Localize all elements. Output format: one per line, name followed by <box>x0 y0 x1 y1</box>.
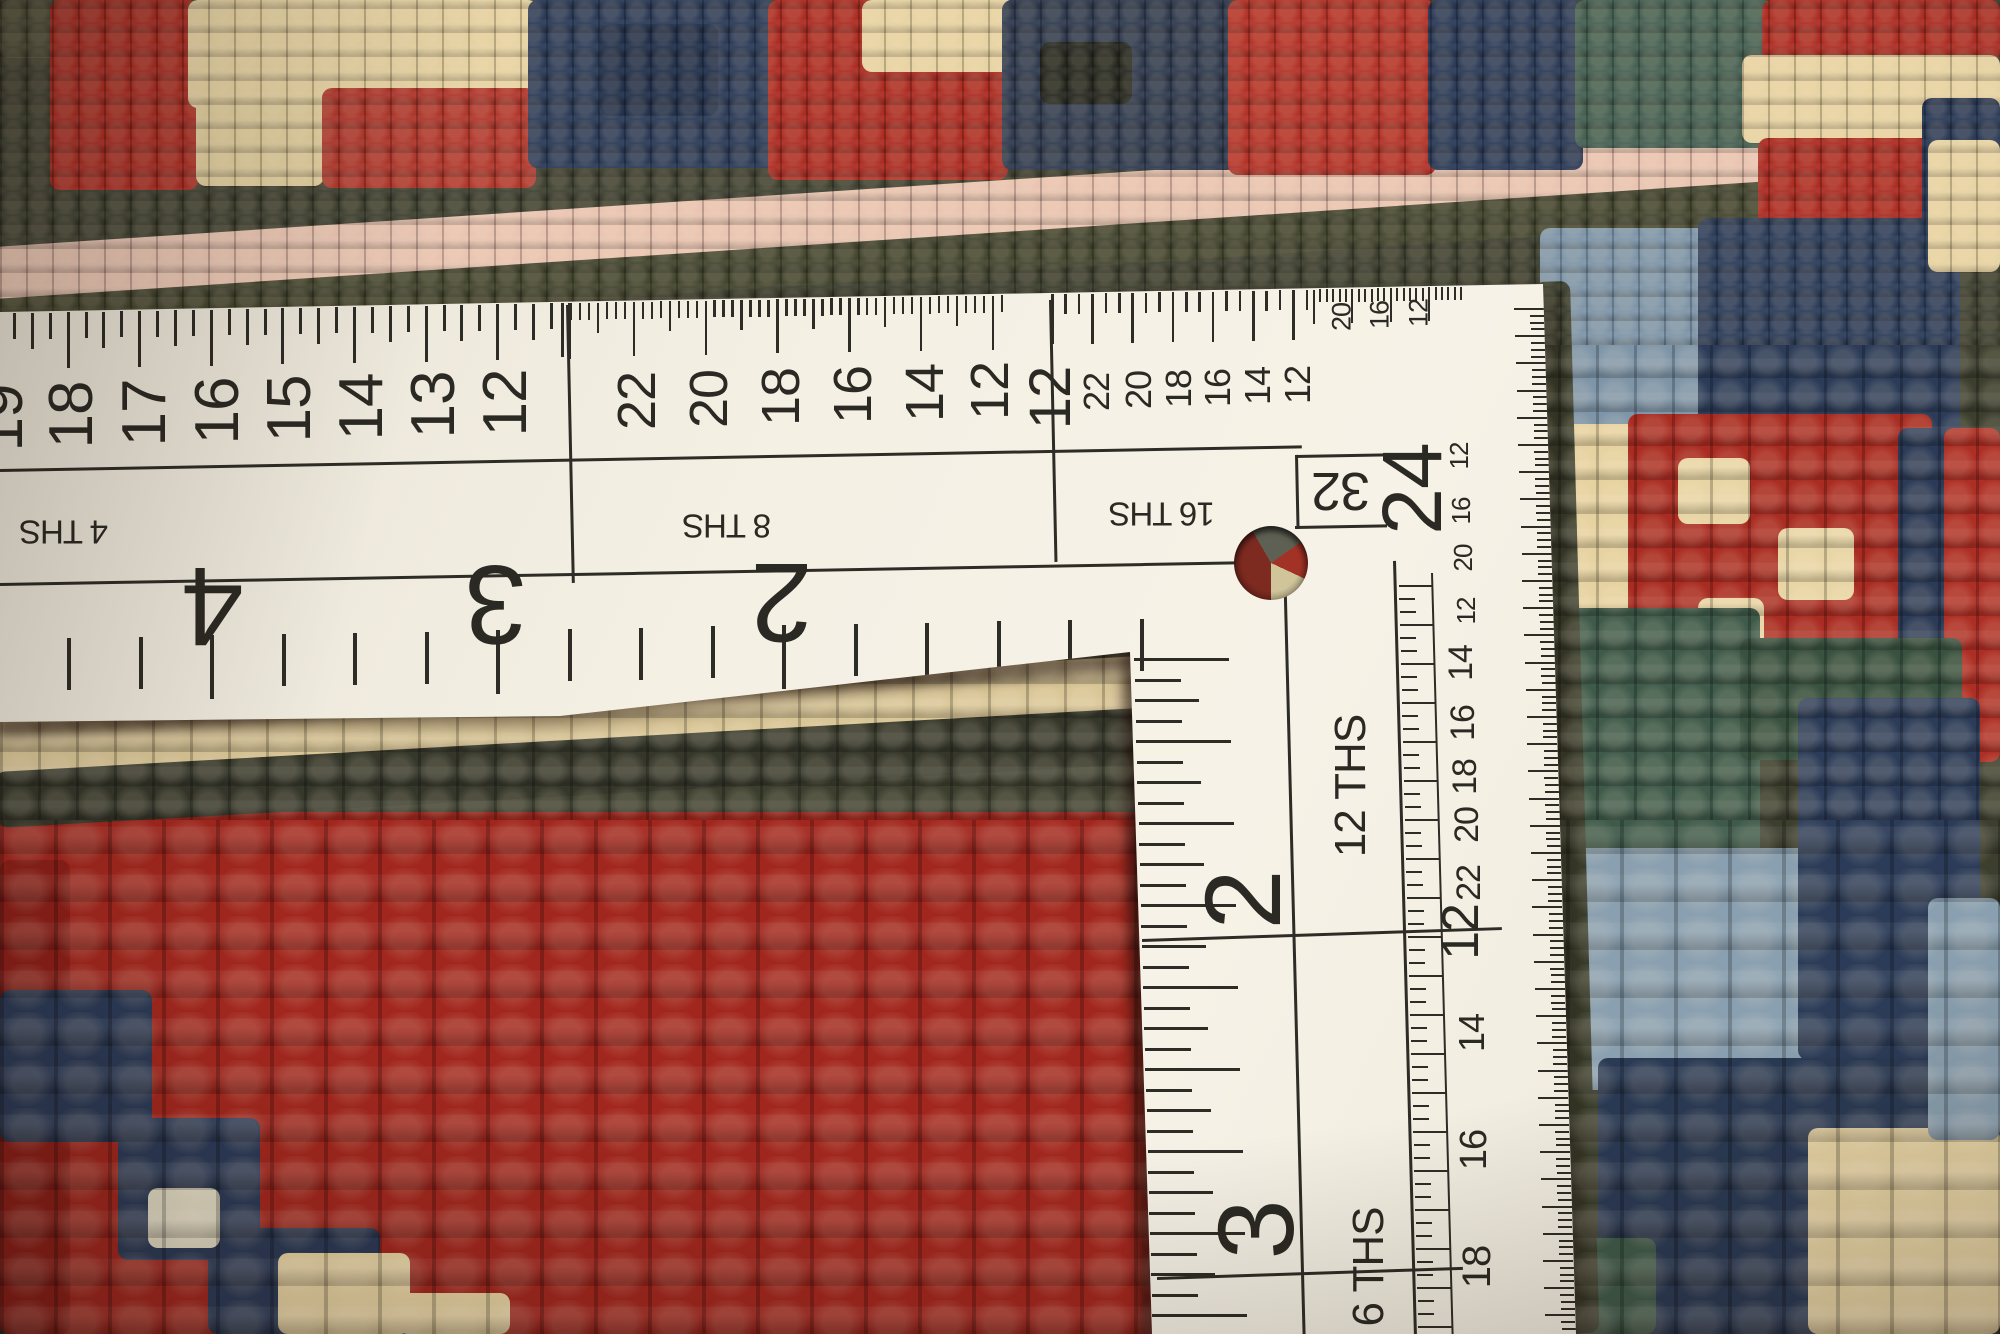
ruler-tick <box>1279 290 1282 310</box>
ruler-tick <box>1561 1308 1575 1310</box>
ruler-tick <box>1551 981 1565 983</box>
ruler-tick <box>1552 1036 1566 1038</box>
ruler-scale-label: 32 <box>1312 464 1370 518</box>
ruler-number: 14 <box>898 364 952 422</box>
ruler-tick <box>1141 925 1187 928</box>
ruler-tick <box>1542 696 1556 698</box>
ruler-tick <box>1544 777 1558 779</box>
ruler-tick <box>1146 1089 1192 1092</box>
ruler-tick <box>1447 287 1449 300</box>
ruler-tick <box>1547 845 1561 847</box>
ruler-number: 16 <box>1448 498 1474 525</box>
ruler-tick <box>1418 1326 1452 1328</box>
ruler-tick <box>1528 770 1558 772</box>
ruler-tick <box>407 306 410 332</box>
ruler-tick <box>1412 1079 1428 1081</box>
ruler-tick <box>1514 308 1544 310</box>
ruler-tick <box>639 628 643 680</box>
ruler-tick <box>1550 954 1564 956</box>
ruler-tick <box>606 302 609 319</box>
ruler-tick <box>561 303 564 357</box>
ruler-tick <box>1537 539 1551 541</box>
ruler-tick <box>1545 804 1559 806</box>
ruler-tick <box>1531 328 1545 330</box>
ruler-tick <box>1546 818 1560 820</box>
ruler-tick <box>1542 682 1556 684</box>
ruler-tick <box>983 296 986 313</box>
ruler-tick <box>1411 1040 1427 1042</box>
ruler-tick <box>1537 546 1551 548</box>
ruler-tick <box>1135 679 1181 682</box>
ruler-tick <box>1403 728 1419 730</box>
ruler-tick <box>1555 1117 1569 1119</box>
ruler-number: 16 <box>1455 1130 1493 1170</box>
ruler-tick <box>1523 607 1553 609</box>
ruler-tick <box>1364 289 1366 302</box>
ruler-tick <box>1139 822 1234 825</box>
ruler-tick <box>1534 430 1548 432</box>
ruler-tick <box>1139 843 1185 846</box>
ruler-tick <box>1417 1274 1433 1276</box>
ruler-tick <box>624 302 627 319</box>
ruler-tick <box>1543 736 1557 738</box>
ruler-tick <box>731 300 734 317</box>
ruler-tick <box>1265 291 1268 311</box>
ruler-tick <box>1538 560 1552 562</box>
ruler-tick <box>299 308 302 334</box>
ruler-tick <box>1540 1151 1570 1153</box>
ruler-tick <box>1539 614 1553 616</box>
ruler-number: 12 <box>1280 366 1316 404</box>
ruler-tick <box>1407 897 1441 899</box>
ruler-number: 12 <box>1453 598 1479 625</box>
ruler-tick <box>1558 1199 1572 1201</box>
ruler-tick <box>1403 741 1437 743</box>
ruler-tick <box>776 299 779 353</box>
ruler-tick <box>1539 600 1553 602</box>
ruler-tick <box>1542 709 1556 711</box>
ruler-tick <box>1536 505 1550 507</box>
ruler-tick <box>139 637 143 689</box>
ruler-number: 14 <box>1454 1014 1490 1052</box>
ruler-tick <box>1332 289 1334 302</box>
ruler-number: 22 <box>610 372 664 430</box>
ruler-tick <box>1552 1008 1566 1010</box>
ruler-tick <box>651 302 654 319</box>
ruler-tick <box>1145 293 1148 313</box>
ruler-tick <box>1556 1165 1570 1167</box>
ruler-tick <box>281 308 284 364</box>
ruler-tick <box>1544 750 1558 752</box>
ruler-tick <box>1383 288 1385 301</box>
ruler-tick <box>1144 1027 1208 1030</box>
ruler-tick <box>1536 492 1550 494</box>
ruler-tick <box>1559 1246 1573 1248</box>
ruler-tick <box>67 312 70 368</box>
ruler-tick <box>1551 1002 1565 1004</box>
ruler-tick <box>1544 1287 1574 1289</box>
ruler-tick <box>705 301 708 355</box>
ruler-tick <box>956 296 959 326</box>
ruler-tick <box>1415 1209 1449 1211</box>
ruler-tick <box>1406 871 1422 873</box>
ruler-number: 24 <box>1370 443 1454 534</box>
ruler-tick <box>597 303 600 333</box>
ruler-tick <box>1144 1007 1190 1010</box>
ruler-tick <box>138 311 141 367</box>
ruler-tick <box>992 296 995 350</box>
ruler-tick <box>803 299 806 316</box>
ruler-tick <box>1542 702 1556 704</box>
ruler-tick <box>1536 1015 1566 1017</box>
ruler-scale-label: 16 THS <box>1109 498 1214 531</box>
ruler-tick <box>568 629 572 681</box>
ruler-tick <box>1399 598 1415 600</box>
ruler-tick <box>1371 289 1373 302</box>
ruler-tick <box>389 306 392 342</box>
ruler-tick <box>1147 1109 1211 1112</box>
ruler-tick <box>1252 291 1255 341</box>
ruler-number: 16 <box>826 366 880 424</box>
ruler-tick <box>1539 594 1553 596</box>
ruler-tick <box>1158 292 1161 312</box>
ruler-tick <box>669 301 672 331</box>
ruler-tick <box>1532 369 1546 371</box>
ruler-tick <box>947 296 950 313</box>
ruler-tick <box>1541 668 1555 670</box>
ruler-tick <box>1556 1138 1570 1140</box>
ruler-tick <box>1532 906 1562 908</box>
ruler-tick <box>1540 628 1554 630</box>
ruler-number: 18 <box>754 368 808 426</box>
ruler-tick <box>588 303 591 320</box>
ruler-tick <box>1403 754 1419 756</box>
ruler-tick <box>1517 390 1547 392</box>
ruler-tick <box>1559 1240 1573 1242</box>
ruler-tick <box>740 300 743 330</box>
ruler-tick <box>1143 966 1189 969</box>
ruler-tick <box>1409 962 1425 964</box>
ruler-tick <box>1415 1183 1431 1185</box>
ruler-number: 19 <box>0 385 33 452</box>
ruler-tick <box>1533 410 1547 412</box>
ruler-tick <box>1198 292 1201 312</box>
ruler-tick <box>1538 1070 1568 1072</box>
ruler-number: 17 <box>114 380 176 447</box>
ruler-tick <box>1542 1206 1572 1208</box>
ruler-tick <box>579 303 582 320</box>
ruler-tick <box>1550 968 1564 970</box>
ruler-number: 14 <box>331 374 393 441</box>
ruler-tick <box>1137 781 1201 784</box>
ruler-tick <box>767 300 770 317</box>
ruler-tick <box>1339 289 1341 302</box>
ruler-tick <box>1406 845 1422 847</box>
ruler-number: 16 <box>1446 705 1480 741</box>
ruler-tick <box>1551 974 1565 976</box>
ruler-tick <box>1550 947 1564 949</box>
ruler-tick <box>210 310 213 366</box>
ruler-tick <box>1410 1014 1444 1016</box>
ruler-number: 2 <box>1189 870 1297 929</box>
ruler-tick <box>1562 1328 1576 1330</box>
ruler-tick <box>1532 879 1562 881</box>
ruler-tick <box>1118 293 1121 313</box>
ruler-tick <box>1410 988 1426 990</box>
ruler-tick <box>1413 1131 1447 1133</box>
ruler-tick <box>1561 1301 1575 1303</box>
ruler-tick <box>1402 689 1418 691</box>
ruler-tick <box>633 302 636 356</box>
ruler-shadow-wrap: 1918171615141312222018161412122220181614… <box>0 0 2000 1334</box>
ruler-tick <box>1306 290 1309 310</box>
ruler-tick <box>830 298 833 315</box>
ruler-tick <box>1460 287 1462 300</box>
ruler-tick <box>1415 1196 1431 1198</box>
ruler-tick <box>335 307 338 333</box>
ruler-tick <box>1535 988 1565 990</box>
ruler-number: 16 <box>1200 369 1236 407</box>
ruler-tick <box>31 313 34 349</box>
ruler-tick <box>1151 1273 1215 1276</box>
ruler-tick <box>1543 723 1557 725</box>
ruler-tick <box>1406 858 1440 860</box>
ruler-tick <box>1405 819 1439 821</box>
ruler-tick <box>1522 580 1552 582</box>
ruler-tick <box>120 311 123 337</box>
ruler-tick <box>1404 767 1420 769</box>
ruler-tick <box>1530 825 1560 827</box>
ruler-tick <box>1536 512 1550 514</box>
ruler-tick <box>1560 1267 1574 1269</box>
ruler-number: 18 <box>41 382 103 449</box>
ruler-scale-label: 4 THS <box>20 516 108 549</box>
ruler-tick <box>1416 1248 1450 1250</box>
ruler-number: 12 <box>1446 443 1472 470</box>
ruler-tick <box>1413 1105 1429 1107</box>
ruler-tick <box>1414 1170 1448 1172</box>
ruler-tick <box>1519 471 1549 473</box>
ruler-tick <box>1553 1056 1567 1058</box>
ruler-tick <box>1549 927 1563 929</box>
ruler-tick <box>1147 1130 1193 1133</box>
ruler-tick <box>1313 290 1315 324</box>
ruler-tick <box>1408 923 1424 925</box>
ruler-tick <box>1411 1027 1427 1029</box>
ruler-tick <box>1138 802 1184 805</box>
ruler-number: 12 <box>963 362 1017 420</box>
ruler-tick <box>1540 621 1554 623</box>
ruler-rule-line <box>1295 455 1300 529</box>
ruler-tick <box>1535 478 1549 480</box>
ruler-tick <box>1555 1131 1569 1133</box>
ruler-tick <box>758 300 761 317</box>
ruler-tick <box>1557 1185 1571 1187</box>
ruler-scale-label: 12 THS <box>1329 715 1373 857</box>
ruler-tick <box>938 296 941 313</box>
ruler-tick <box>1555 1110 1569 1112</box>
ruler-tick <box>264 309 267 335</box>
ruler-tick <box>1545 791 1559 793</box>
ruler-tick <box>1534 451 1548 453</box>
ruler-tick <box>1149 1212 1195 1215</box>
ruler-tick <box>1172 292 1175 342</box>
ruler-tick <box>1546 838 1560 840</box>
ruler-tick <box>496 304 499 360</box>
ruler-tick <box>854 624 858 676</box>
ruler-tick <box>749 300 752 317</box>
ruler-tick <box>1185 292 1188 312</box>
ruler-tick <box>821 299 824 316</box>
ruler-tick <box>1412 1066 1428 1068</box>
ruler-number: 18 <box>1448 759 1482 795</box>
ruler-tick <box>1537 1042 1567 1044</box>
ruler-tick <box>1134 658 1229 661</box>
ruler-tick <box>1541 1178 1571 1180</box>
ruler-tick <box>1560 1280 1574 1282</box>
ruler-tick <box>1413 1118 1429 1120</box>
ruler-tick <box>1550 940 1564 942</box>
ruler-number: 13 <box>403 372 465 439</box>
ruler-tick <box>1145 1068 1240 1071</box>
ruler-tick <box>1400 624 1434 626</box>
ruler-tick <box>1409 975 1443 977</box>
ruler-tick <box>1517 417 1547 419</box>
ruler-number: 20 <box>1329 303 1356 331</box>
ruler-tick <box>1543 1260 1573 1262</box>
ruler-tick <box>911 297 914 314</box>
ruler-rule-line <box>0 445 1302 472</box>
ruler-tick <box>1239 291 1242 311</box>
ruler-number: 12 <box>1406 299 1433 327</box>
ruler-tick <box>1148 1171 1194 1174</box>
ruler-tick <box>1533 934 1563 936</box>
ruler-tick <box>1545 1314 1575 1316</box>
ruler-number: 3 <box>465 548 526 660</box>
ruler-tick <box>1547 872 1561 874</box>
ruler-tick <box>785 299 788 316</box>
ruler-tick <box>102 312 105 348</box>
ruler-tick <box>1533 396 1547 398</box>
ruler-number: 18 <box>1457 1246 1497 1289</box>
ruler-tick <box>1410 1001 1426 1003</box>
ruler-tick <box>570 303 573 320</box>
ruler-tick <box>460 305 463 341</box>
ruler-tick <box>192 310 195 336</box>
ruler-tick <box>174 310 177 346</box>
ruler-tick <box>1532 376 1546 378</box>
ruler-tick <box>1557 1192 1571 1194</box>
ruler-tick <box>1152 1294 1198 1297</box>
ruler-number: 16 <box>1367 301 1394 329</box>
ruler-tick <box>713 300 716 317</box>
ruler-number: 4 <box>182 550 243 662</box>
ruler-tick <box>1401 663 1435 665</box>
ruler-tick <box>1551 995 1565 997</box>
ruler-tick <box>67 638 71 690</box>
ruler-tick <box>1131 293 1134 343</box>
ruler-tick <box>1531 349 1545 351</box>
ruler-tick <box>1001 295 1004 312</box>
ruler-tick <box>1151 1253 1197 1256</box>
ruler-tick <box>1143 986 1238 989</box>
ruler-hanging-hole <box>1234 526 1308 600</box>
ruler-tick <box>678 301 681 318</box>
ruler-number: 20 <box>1450 807 1484 843</box>
ruler-tick <box>1454 287 1456 300</box>
ruler-tick <box>1091 294 1094 344</box>
ruler-tick <box>1538 573 1552 575</box>
ruler-tick <box>1553 1063 1567 1065</box>
ruler-number: 12 <box>475 370 537 437</box>
ruler-tick <box>1405 832 1421 834</box>
ruler-tick <box>997 621 1001 673</box>
photo-scene: 1918171615141312222018161412122220181614… <box>0 0 2000 1334</box>
ruler-tick <box>1544 764 1558 766</box>
ruler-tick <box>1557 1172 1571 1174</box>
ruler-number: 22 <box>1452 865 1486 901</box>
ruler-tick <box>478 305 481 331</box>
ruler-tick <box>642 302 645 319</box>
ruler-tick <box>920 297 923 351</box>
ruler-tick <box>550 303 553 329</box>
ruler-tick <box>1543 1233 1573 1235</box>
ruler-tick <box>1554 1090 1568 1092</box>
ruler-tick <box>425 632 429 684</box>
ruler-tick <box>1142 945 1206 948</box>
ruler-tick <box>875 298 878 315</box>
ruler-tick <box>1535 485 1549 487</box>
ruler-tick <box>1548 900 1562 902</box>
ruler-tick <box>1516 362 1546 364</box>
ruler-tick <box>1136 740 1231 743</box>
ruler-number: 2 <box>751 546 812 658</box>
ruler-tick <box>884 297 887 327</box>
ruler-number: 20 <box>1450 545 1476 572</box>
ruler-tick <box>1522 553 1552 555</box>
ruler-tick <box>1441 287 1443 300</box>
ruler-tick <box>1418 1300 1434 1302</box>
ruler-tick <box>1140 863 1204 866</box>
ruler-tick <box>353 307 356 363</box>
ruler-tick <box>1554 1076 1568 1078</box>
ruler-tick <box>1521 526 1551 528</box>
ruler-tick <box>1416 1222 1432 1224</box>
ruler-number: 18 <box>1161 370 1197 408</box>
ruler-tick <box>85 312 88 338</box>
ruler-tick <box>1531 852 1561 854</box>
ruler-tick <box>1530 315 1544 317</box>
ruler-tick <box>1561 1321 1575 1323</box>
ruler-tick <box>1407 884 1423 886</box>
ruler-number: 14 <box>1444 645 1478 681</box>
ruler-tick <box>1556 1144 1570 1146</box>
ruler-tick <box>1412 1092 1446 1094</box>
ruler-tick <box>1400 611 1416 613</box>
ruler-tick <box>1531 342 1545 344</box>
ruler-tick <box>1435 287 1437 300</box>
ruler-tick <box>1145 1048 1191 1051</box>
ruler-tick <box>1534 424 1548 426</box>
ruler-tick <box>1401 676 1417 678</box>
ruler-tick <box>1417 1287 1451 1289</box>
ruler-tick <box>1545 784 1559 786</box>
ruler-number: 12 <box>1022 367 1080 430</box>
ruler-tick <box>794 299 797 316</box>
ruler-tick <box>443 305 446 331</box>
ruler-tick <box>1148 1150 1243 1153</box>
ruler-tick <box>866 298 869 315</box>
